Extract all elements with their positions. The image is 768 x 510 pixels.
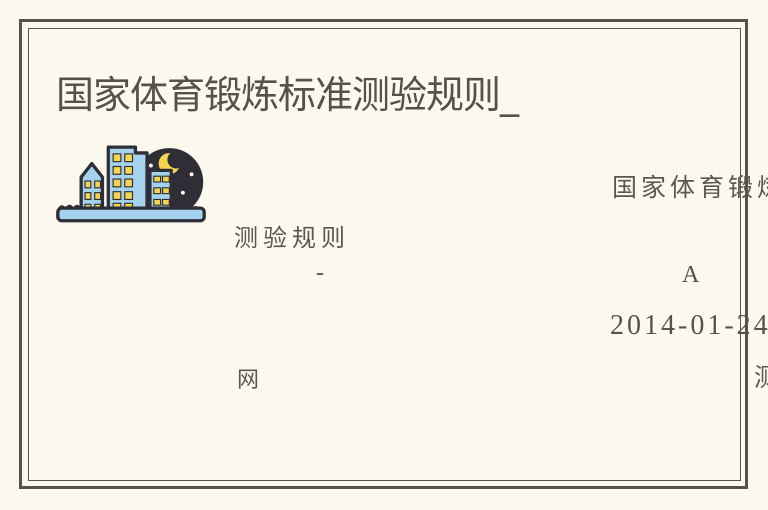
source-title-fragment: 国家体育锻炼 bbox=[612, 168, 768, 204]
dash-mark: - bbox=[316, 260, 324, 287]
document-page: { "colors": { "background": "#fbf9ee", "… bbox=[0, 0, 768, 510]
night-city-icon bbox=[55, 136, 210, 228]
edge-clipped-character: 测 bbox=[754, 358, 768, 394]
night-city-logo bbox=[55, 136, 210, 228]
page-title: 国家体育锻炼标准测验规则_ bbox=[56, 64, 518, 119]
site-suffix: 网 bbox=[237, 362, 259, 394]
grade-letter: A bbox=[682, 262, 699, 289]
date-stamp: 2014-01-24 bbox=[610, 310, 768, 342]
subtitle-fragment: 测验规则 bbox=[234, 218, 350, 253]
